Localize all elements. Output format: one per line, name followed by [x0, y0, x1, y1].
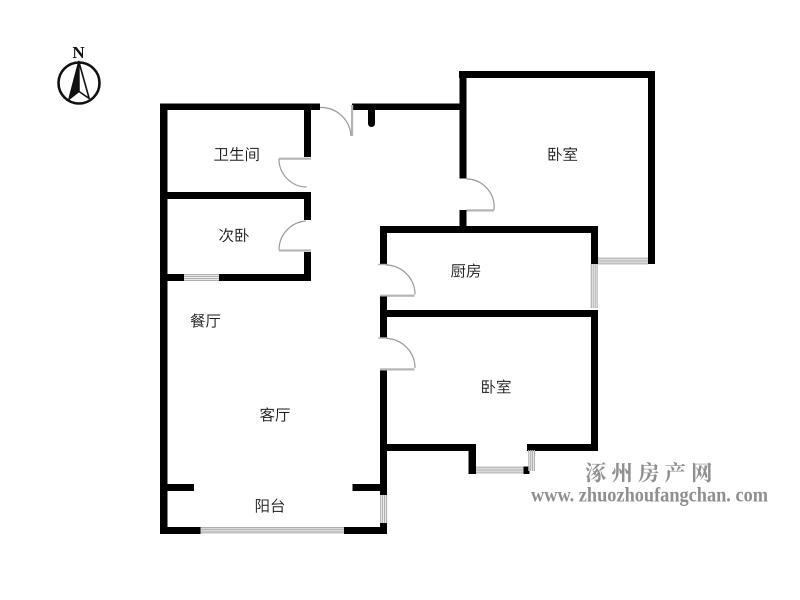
svg-text:www. zhuozhoufangchan. com: www. zhuozhoufangchan. com [531, 483, 768, 507]
svg-text:N: N [72, 43, 85, 62]
